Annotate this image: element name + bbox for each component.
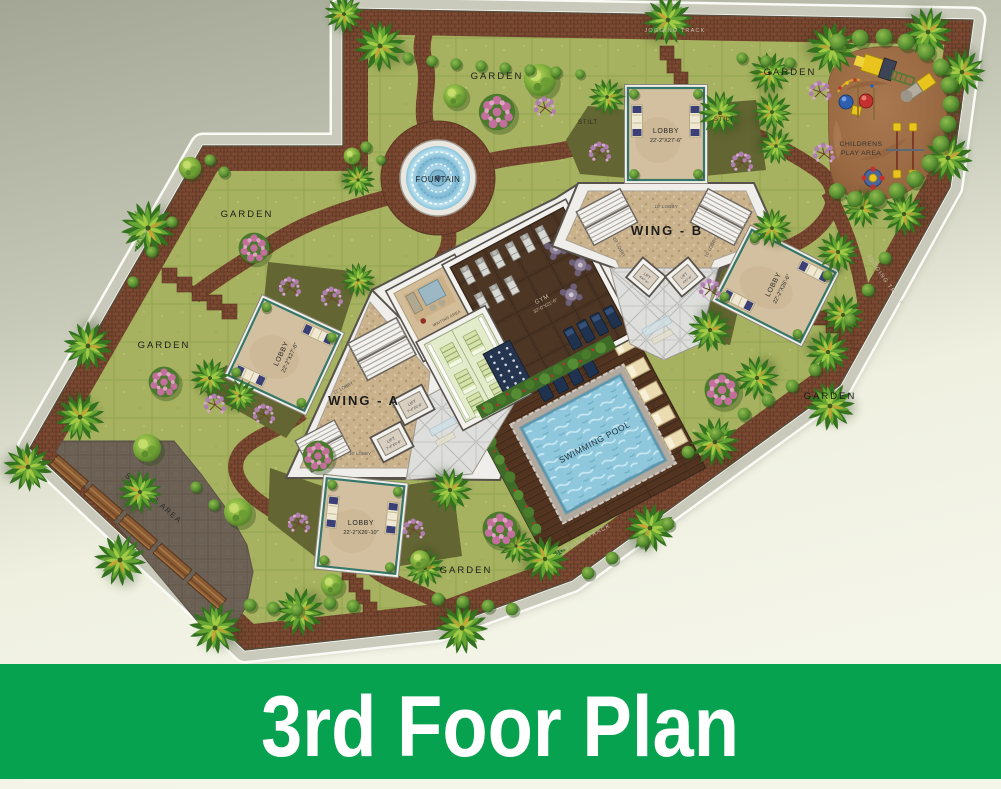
- svg-text:JOGGING TRACK: JOGGING TRACK: [644, 28, 705, 34]
- svg-text:GARDEN: GARDEN: [471, 71, 524, 82]
- svg-text:PLAY AREA: PLAY AREA: [841, 150, 881, 157]
- svg-text:22′-2″X26′-10″: 22′-2″X26′-10″: [343, 530, 378, 536]
- svg-text:STILT: STILT: [578, 120, 598, 126]
- svg-text:GARDEN: GARDEN: [138, 340, 191, 351]
- svg-text:LOBBY: LOBBY: [348, 520, 374, 527]
- svg-text:GARDEN: GARDEN: [440, 565, 493, 576]
- svg-text:GARDEN: GARDEN: [804, 391, 857, 402]
- svg-text:GARDEN: GARDEN: [221, 209, 274, 220]
- svg-text:FOUNTAIN: FOUNTAIN: [415, 175, 460, 184]
- svg-text:LOBBY: LOBBY: [653, 128, 679, 135]
- svg-text:WING - B: WING - B: [631, 223, 703, 238]
- svg-text:GARDEN: GARDEN: [764, 67, 817, 78]
- svg-text:10′ LOBBY: 10′ LOBBY: [349, 451, 371, 456]
- svg-text:22′-2″X27′-6″: 22′-2″X27′-6″: [650, 138, 682, 144]
- svg-text:3rd Foor Plan: 3rd Foor Plan: [261, 679, 739, 775]
- svg-text:STILT: STILT: [714, 117, 734, 123]
- svg-text:WING - A: WING - A: [328, 393, 400, 408]
- svg-text:CHILDRENS: CHILDRENS: [840, 141, 883, 148]
- svg-text:10′ LOBBY: 10′ LOBBY: [654, 204, 678, 210]
